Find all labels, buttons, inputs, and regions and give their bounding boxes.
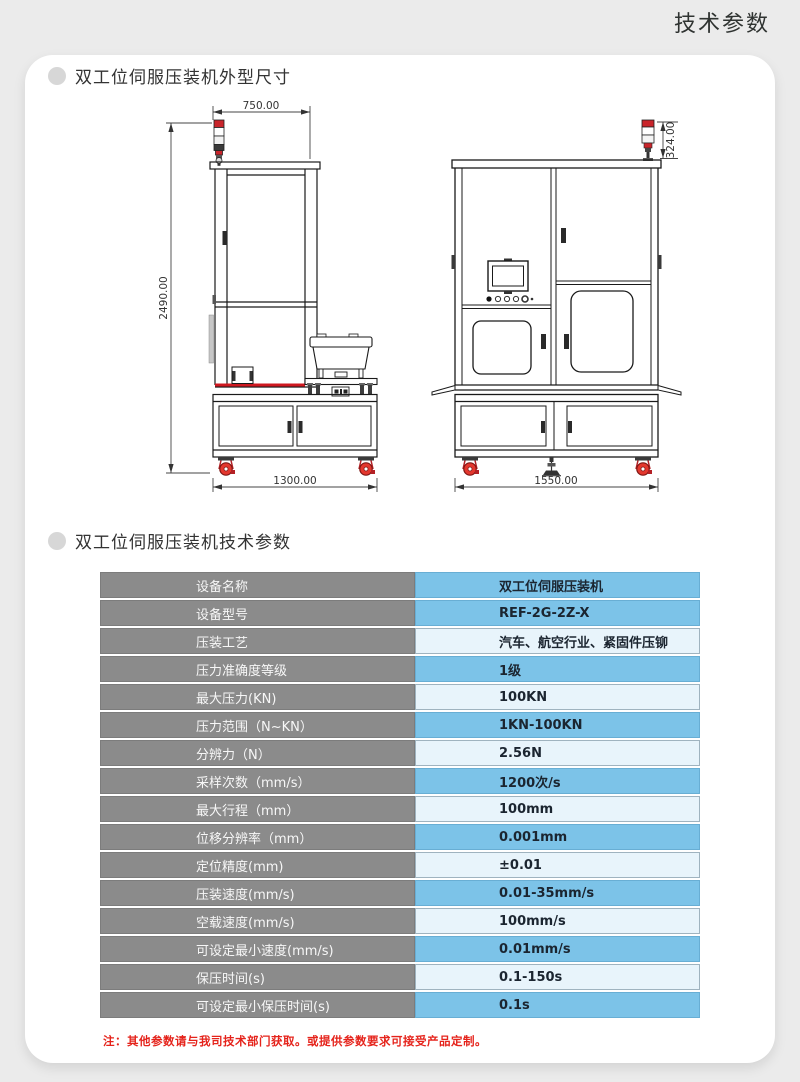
- table-row: 压装工艺汽车、航空行业、紧固件压铆: [100, 628, 700, 654]
- leveling-foot-icon: [542, 457, 561, 476]
- spec-value: 0.01-35mm/s: [415, 880, 700, 906]
- spec-value: 0.01mm/s: [415, 936, 700, 962]
- spec-label: 设备名称: [100, 572, 415, 598]
- table-row: 分辨力（N）2.56N: [100, 740, 700, 766]
- table-row: 保压时间(s)0.1-150s: [100, 964, 700, 990]
- spec-label: 设备型号: [100, 600, 415, 626]
- page-title: 技术参数: [674, 6, 770, 38]
- spec-sheet-page: 技术参数 双工位伺服压装机外型尺寸: [0, 0, 800, 1082]
- spec-value: 0.001mm: [415, 824, 700, 850]
- signal-lamp-icon: [214, 120, 224, 166]
- table-row: 定位精度(mm)±0.01: [100, 852, 700, 878]
- caster-icon: [358, 457, 375, 475]
- spec-value: 双工位伺服压装机: [415, 572, 700, 598]
- table-row: 设备名称双工位伺服压装机: [100, 572, 700, 598]
- caster-icon: [635, 457, 652, 475]
- spec-label: 空载速度(mm/s): [100, 908, 415, 934]
- table-row: 设备型号REF-2G-2Z-X: [100, 600, 700, 626]
- spec-value: 1级: [415, 656, 700, 682]
- dim-label-width-bottom: 1300.00: [273, 475, 316, 487]
- spec-label: 最大压力(KN): [100, 684, 415, 710]
- spec-label: 可设定最小保压时间(s): [100, 992, 415, 1018]
- spec-label: 压力范围（N~KN）: [100, 712, 415, 738]
- spec-label: 最大行程（mm）: [100, 796, 415, 822]
- table-row: 最大压力(KN)100KN: [100, 684, 700, 710]
- spec-label: 压装速度(mm/s): [100, 880, 415, 906]
- section-dimensions-header: 双工位伺服压装机外型尺寸: [48, 63, 291, 88]
- table-row: 可设定最小保压时间(s)0.1s: [100, 992, 700, 1018]
- dim-label-width-bottom: 1550.00: [534, 475, 577, 487]
- front-view-drawing: 324.00 1550.00: [425, 95, 710, 500]
- machine-tower: [210, 162, 320, 387]
- caster-icon: [218, 457, 235, 475]
- spec-label: 分辨力（N）: [100, 740, 415, 766]
- base-cabinet: [213, 395, 377, 458]
- section-title: 双工位伺服压装机技术参数: [75, 528, 291, 553]
- table-row: 空载速度(mm/s)100mm/s: [100, 908, 700, 934]
- signal-lamp-icon: [642, 120, 654, 161]
- table-row: 最大行程（mm）100mm: [100, 796, 700, 822]
- caster-icon: [462, 457, 479, 475]
- dim-label-lamp-height: 324.00: [665, 122, 677, 159]
- spec-label: 定位精度(mm): [100, 852, 415, 878]
- table-row: 可设定最小速度(mm/s)0.01mm/s: [100, 936, 700, 962]
- spec-value: 100mm/s: [415, 908, 700, 934]
- table-row: 压力范围（N~KN）1KN-100KN: [100, 712, 700, 738]
- spec-label: 位移分辨率（mm）: [100, 824, 415, 850]
- fixture-box: [232, 367, 253, 384]
- spec-label: 压装工艺: [100, 628, 415, 654]
- section-bullet-icon: [48, 67, 66, 85]
- spec-label: 保压时间(s): [100, 964, 415, 990]
- spec-value: 0.1s: [415, 992, 700, 1018]
- side-view-drawing: 750.00 2490.00 1300.00: [140, 95, 395, 500]
- hmi-monitor: [488, 259, 528, 295]
- spec-value: 2.56N: [415, 740, 700, 766]
- dim-750: [166, 106, 377, 492]
- spec-table: 设备名称双工位伺服压装机设备型号REF-2G-2Z-X压装工艺汽车、航空行业、紧…: [100, 572, 700, 1018]
- spec-label: 采样次数（mm/s）: [100, 768, 415, 794]
- table-band: [432, 385, 681, 395]
- section-parameters-header: 双工位伺服压装机技术参数: [48, 528, 291, 553]
- section-bullet-icon: [48, 532, 66, 550]
- table-row: 采样次数（mm/s）1200次/s: [100, 768, 700, 794]
- cabinet-frame: [452, 160, 662, 385]
- spec-value: 0.1-150s: [415, 964, 700, 990]
- side-panel: [209, 315, 214, 363]
- section-title: 双工位伺服压装机外型尺寸: [75, 63, 291, 88]
- spec-value: ±0.01: [415, 852, 700, 878]
- spec-label: 压力准确度等级: [100, 656, 415, 682]
- dim-label-height: 2490.00: [158, 276, 170, 319]
- hinge: [213, 295, 217, 304]
- door-handle: [223, 231, 228, 245]
- table-row: 位移分辨率（mm）0.001mm: [100, 824, 700, 850]
- table-red-strip: [215, 384, 305, 387]
- spec-value: 100mm: [415, 796, 700, 822]
- table-row: 压力准确度等级1级: [100, 656, 700, 682]
- spec-value: 1KN-100KN: [415, 712, 700, 738]
- spec-value: 1200次/s: [415, 768, 700, 794]
- control-buttons: [486, 296, 533, 302]
- spec-label: 可设定最小速度(mm/s): [100, 936, 415, 962]
- content-card: 双工位伺服压装机外型尺寸 750.00 2490.00: [25, 55, 775, 1063]
- dim-label-width-top: 750.00: [243, 100, 280, 112]
- base-cabinet: [455, 395, 658, 458]
- spec-value: 汽车、航空行业、紧固件压铆: [415, 628, 700, 654]
- spec-value: REF-2G-2Z-X: [415, 600, 700, 626]
- table-row: 压装速度(mm/s)0.01-35mm/s: [100, 880, 700, 906]
- spec-value: 100KN: [415, 684, 700, 710]
- footnote: 注：其他参数请与我司技术部门获取。或提供参数要求可接受产品定制。: [103, 1033, 487, 1049]
